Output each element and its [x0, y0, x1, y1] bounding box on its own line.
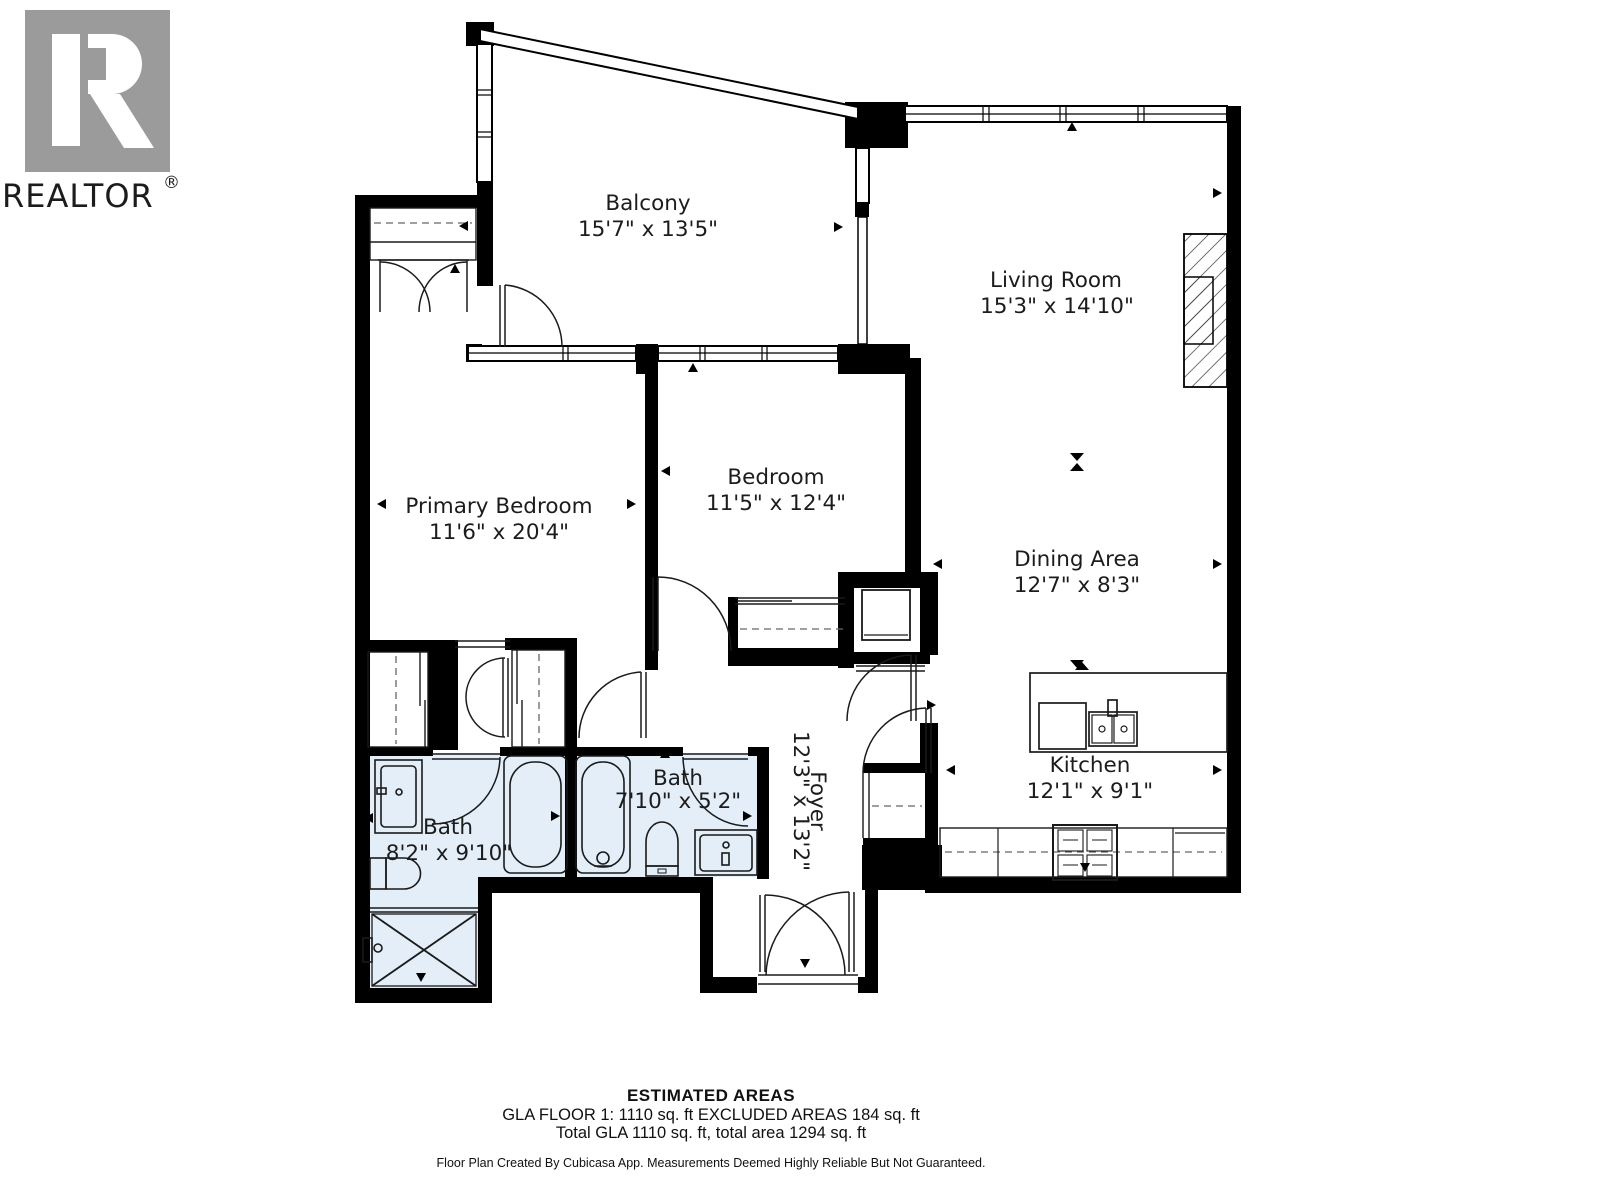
label-primary-name: Primary Bedroom [405, 494, 592, 519]
closet-left [368, 652, 428, 747]
laundry-appliance [862, 590, 910, 640]
balcony-railing-right-lower [858, 217, 867, 344]
balcony-railing-left [477, 44, 492, 182]
floorplan-drawing: Balcony 15'7" x 13'5" Living Room 15'3" … [0, 0, 1600, 1200]
label-kitchen-dims: 12'1" x 9'1" [1027, 779, 1153, 804]
nook-wardrobe [370, 208, 476, 260]
label-living-dims: 15'3" x 14'10" [980, 294, 1134, 319]
label-bedroom-name: Bedroom [727, 465, 824, 490]
footer-gla-line: GLA FLOOR 1: 1110 sq. ft EXCLUDED AREAS … [311, 1106, 1111, 1124]
fireplace-hatched-block [1184, 234, 1227, 387]
label-bedroom-dims: 11'5" x 12'4" [706, 491, 846, 516]
label-dining-name: Dining Area [1014, 547, 1140, 572]
label-foyer-dims: 12'3" x 13'2" [788, 731, 813, 871]
footer-total-line: Total GLA 1110 sq. ft, total area 1294 s… [311, 1124, 1111, 1142]
balcony-railing-right-upper [856, 148, 869, 203]
footer-disclaimer: Floor Plan Created By Cubicasa App. Meas… [311, 1156, 1111, 1170]
label-balcony-dims: 15'7" x 13'5" [578, 217, 718, 242]
label-dining-dims: 12'7" x 8'3" [1014, 573, 1140, 598]
label-balcony-name: Balcony [605, 191, 690, 216]
floorplan-page: REALTOR ® [0, 0, 1600, 1200]
label-living-name: Living Room [990, 268, 1122, 293]
label-bath1-name: Bath [423, 815, 473, 840]
footer-title: ESTIMATED AREAS [311, 1086, 1111, 1106]
label-primary-dims: 11'6" x 20'4" [429, 520, 569, 545]
faucet-icon [1108, 700, 1117, 716]
dishwasher [1039, 703, 1086, 749]
balcony-railing-diagonal [480, 29, 858, 119]
label-bath2-name: Bath [653, 766, 703, 791]
kitchen-sink [1089, 712, 1137, 746]
estimated-areas-footer: ESTIMATED AREAS GLA FLOOR 1: 1110 sq. ft… [311, 1086, 1111, 1170]
label-kitchen-name: Kitchen [1050, 753, 1131, 778]
label-bath1-dims: 8'2" x 9'10" [386, 841, 512, 866]
label-bath2-dims: 7'10" x 5'2" [615, 789, 741, 814]
